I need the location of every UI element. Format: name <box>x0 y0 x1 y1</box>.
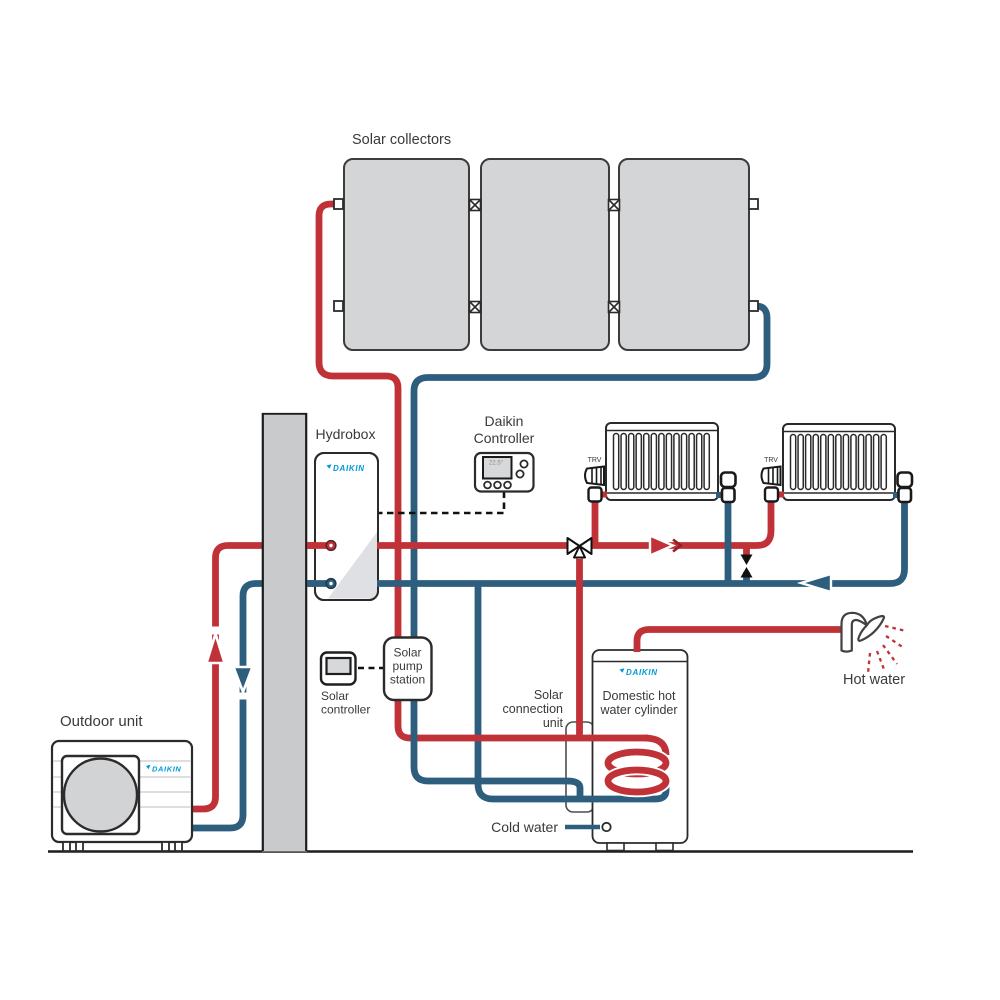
svg-text:Outdoor unit: Outdoor unit <box>60 713 143 730</box>
svg-text:station: station <box>390 673 425 687</box>
svg-text:Cold water: Cold water <box>491 819 558 835</box>
svg-text:Solar collectors: Solar collectors <box>352 132 451 148</box>
svg-text:Hot water: Hot water <box>843 672 905 688</box>
svg-text:22.5°: 22.5° <box>489 461 504 467</box>
svg-text:pump: pump <box>392 659 422 673</box>
svg-text:Solar: Solar <box>534 688 563 702</box>
svg-text:DAIKIN: DAIKIN <box>152 765 181 774</box>
svg-text:unit: unit <box>543 716 564 730</box>
svg-text:Daikin: Daikin <box>485 413 524 429</box>
svg-text:Controller: Controller <box>474 430 535 446</box>
svg-text:Solar: Solar <box>393 646 421 660</box>
svg-text:water cylinder: water cylinder <box>599 703 677 717</box>
svg-text:DAIKIN: DAIKIN <box>333 464 365 473</box>
svg-text:connection: connection <box>503 702 564 716</box>
svg-text:controller: controller <box>321 703 370 717</box>
svg-text:TRV: TRV <box>588 457 602 464</box>
svg-text:DAIKIN: DAIKIN <box>626 668 658 677</box>
svg-text:Hydrobox: Hydrobox <box>316 426 376 442</box>
svg-text:Solar: Solar <box>321 689 349 703</box>
svg-text:TRV: TRV <box>764 457 778 464</box>
svg-text:Domestic hot: Domestic hot <box>603 689 676 703</box>
